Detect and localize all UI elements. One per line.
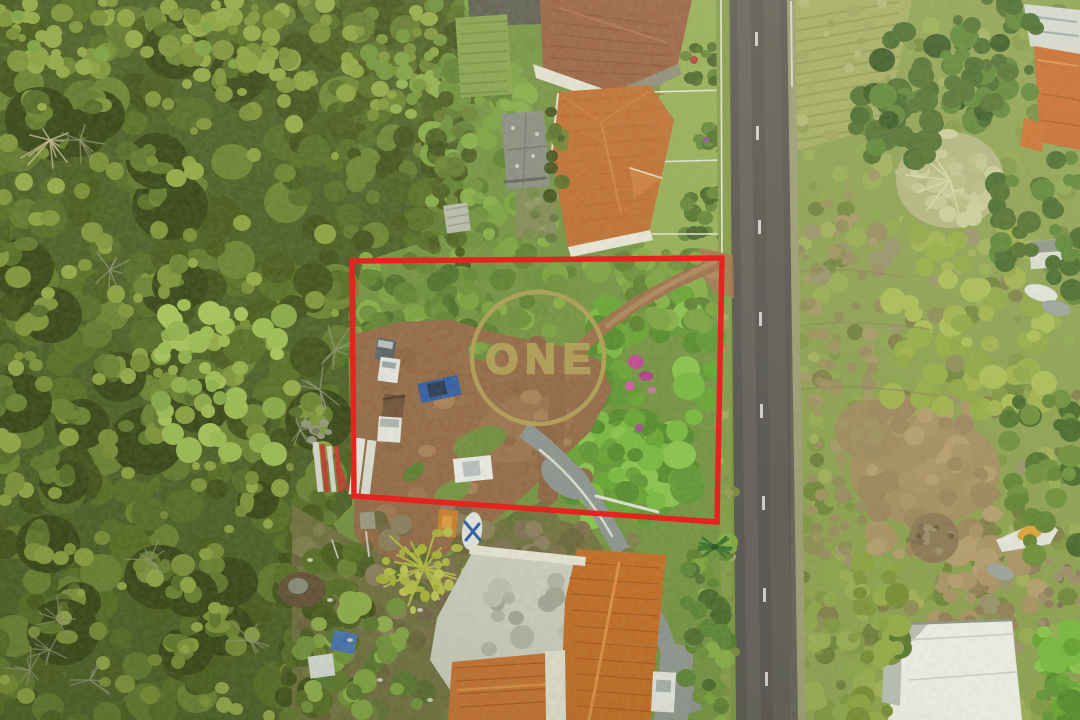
- svg-text:ONE: ONE: [486, 335, 598, 382]
